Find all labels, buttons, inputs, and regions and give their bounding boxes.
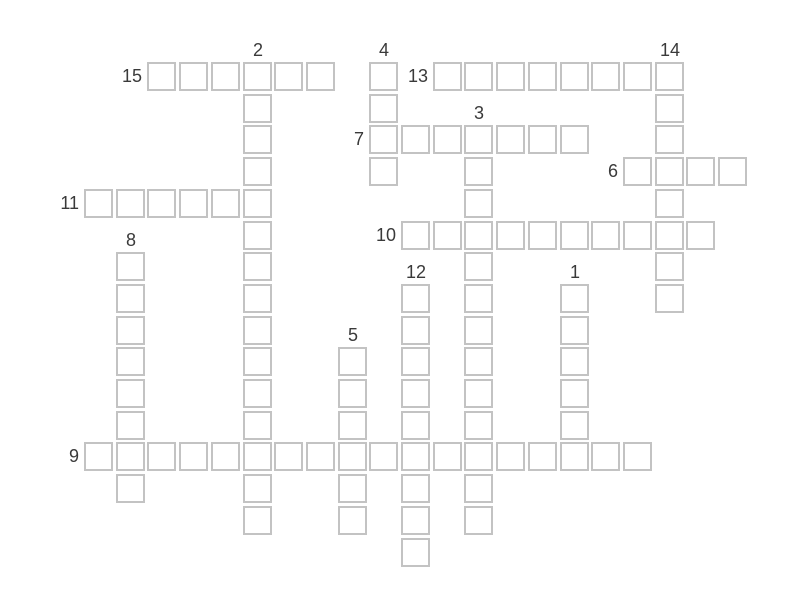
grid-cell[interactable]	[116, 411, 145, 440]
grid-cell[interactable]	[464, 347, 493, 376]
grid-cell[interactable]	[211, 62, 240, 91]
clue-number-3-down: 3	[459, 103, 499, 123]
clue-number-2-down: 2	[238, 40, 278, 60]
grid-cell[interactable]	[338, 411, 367, 440]
grid-cell[interactable]	[623, 62, 652, 91]
grid-cell[interactable]	[116, 252, 145, 281]
grid-cell[interactable]	[338, 347, 367, 376]
clue-number-1-down: 1	[555, 262, 595, 282]
grid-cell[interactable]	[464, 284, 493, 313]
grid-cell[interactable]	[591, 221, 620, 250]
grid-cell[interactable]	[433, 442, 462, 471]
clue-number-7-across: 7	[326, 125, 364, 154]
grid-cell[interactable]	[243, 442, 272, 471]
grid-cell[interactable]	[464, 474, 493, 503]
grid-cell[interactable]	[560, 284, 589, 313]
grid-cell[interactable]	[464, 189, 493, 218]
grid-cell[interactable]	[560, 62, 589, 91]
clue-number-11-across: 11	[41, 189, 79, 218]
grid-cell[interactable]	[464, 379, 493, 408]
grid-cell[interactable]	[655, 284, 684, 313]
grid-cell[interactable]	[369, 157, 398, 186]
grid-cell[interactable]	[179, 189, 208, 218]
grid-cell[interactable]	[560, 442, 589, 471]
grid-cell[interactable]	[116, 189, 145, 218]
grid-cell[interactable]	[306, 442, 335, 471]
grid-cell[interactable]	[401, 284, 430, 313]
grid-cell[interactable]	[464, 125, 493, 154]
grid-cell[interactable]	[338, 506, 367, 535]
clue-number-13-across: 13	[390, 62, 428, 91]
grid-cell[interactable]	[464, 442, 493, 471]
grid-cell[interactable]	[623, 221, 652, 250]
grid-cell[interactable]	[116, 284, 145, 313]
grid-cell[interactable]	[401, 221, 430, 250]
clue-number-15-across: 15	[104, 62, 142, 91]
grid-cell[interactable]	[464, 316, 493, 345]
grid-cell[interactable]	[655, 157, 684, 186]
clue-number-6-across: 6	[580, 157, 618, 186]
grid-cell[interactable]	[306, 62, 335, 91]
grid-cell[interactable]	[401, 316, 430, 345]
grid-cell[interactable]	[243, 411, 272, 440]
grid-cell[interactable]	[718, 157, 747, 186]
grid-cell[interactable]	[369, 125, 398, 154]
clue-number-12-down: 12	[396, 262, 436, 282]
grid-cell[interactable]	[464, 506, 493, 535]
grid-cell[interactable]	[560, 221, 589, 250]
grid-cell[interactable]	[464, 62, 493, 91]
grid-cell[interactable]	[147, 442, 176, 471]
clue-number-9-across: 9	[41, 442, 79, 471]
grid-cell[interactable]	[243, 125, 272, 154]
grid-cell[interactable]	[274, 442, 303, 471]
clue-number-5-down: 5	[333, 325, 373, 345]
grid-cell[interactable]	[560, 379, 589, 408]
grid-cell[interactable]	[655, 94, 684, 123]
grid-cell[interactable]	[243, 94, 272, 123]
grid-cell[interactable]	[464, 252, 493, 281]
grid-cell[interactable]	[496, 221, 525, 250]
grid-cell[interactable]	[655, 125, 684, 154]
grid-cell[interactable]	[116, 316, 145, 345]
grid-cell[interactable]	[433, 221, 462, 250]
grid-cell[interactable]	[623, 157, 652, 186]
grid-cell[interactable]	[686, 221, 715, 250]
grid-cell[interactable]	[496, 442, 525, 471]
grid-cell[interactable]	[369, 94, 398, 123]
grid-cell[interactable]	[211, 189, 240, 218]
grid-cell[interactable]	[401, 506, 430, 535]
grid-cell[interactable]	[243, 284, 272, 313]
grid-cell[interactable]	[84, 442, 113, 471]
grid-cell[interactable]	[147, 189, 176, 218]
grid-cell[interactable]	[401, 379, 430, 408]
grid-cell[interactable]	[243, 316, 272, 345]
grid-cell[interactable]	[401, 538, 430, 567]
grid-cell[interactable]	[464, 157, 493, 186]
grid-cell[interactable]	[369, 442, 398, 471]
grid-cell[interactable]	[528, 442, 557, 471]
grid-cell[interactable]	[655, 189, 684, 218]
grid-cell[interactable]	[211, 442, 240, 471]
grid-cell[interactable]	[591, 62, 620, 91]
grid-cell[interactable]	[655, 62, 684, 91]
crossword-grid: 123456789101112131415	[0, 0, 800, 600]
grid-cell[interactable]	[464, 221, 493, 250]
clue-number-10-across: 10	[358, 221, 396, 250]
grid-cell[interactable]	[274, 62, 303, 91]
grid-cell[interactable]	[147, 62, 176, 91]
grid-cell[interactable]	[338, 442, 367, 471]
grid-cell[interactable]	[528, 125, 557, 154]
grid-cell[interactable]	[433, 62, 462, 91]
grid-cell[interactable]	[686, 157, 715, 186]
grid-cell[interactable]	[528, 221, 557, 250]
grid-cell[interactable]	[496, 125, 525, 154]
grid-cell[interactable]	[243, 379, 272, 408]
grid-cell[interactable]	[401, 442, 430, 471]
grid-cell[interactable]	[243, 157, 272, 186]
grid-cell[interactable]	[401, 347, 430, 376]
grid-cell[interactable]	[655, 221, 684, 250]
grid-cell[interactable]	[179, 442, 208, 471]
clue-number-8-down: 8	[111, 230, 151, 250]
grid-cell[interactable]	[496, 62, 525, 91]
grid-cell[interactable]	[116, 442, 145, 471]
grid-cell[interactable]	[116, 347, 145, 376]
grid-cell[interactable]	[560, 347, 589, 376]
clue-number-4-down: 4	[364, 40, 404, 60]
grid-cell[interactable]	[243, 62, 272, 91]
grid-cell[interactable]	[243, 221, 272, 250]
grid-cell[interactable]	[623, 442, 652, 471]
grid-cell[interactable]	[338, 379, 367, 408]
grid-cell[interactable]	[401, 411, 430, 440]
grid-cell[interactable]	[116, 474, 145, 503]
grid-cell[interactable]	[338, 474, 367, 503]
grid-cell[interactable]	[243, 474, 272, 503]
grid-cell[interactable]	[401, 125, 430, 154]
grid-cell[interactable]	[243, 347, 272, 376]
grid-cell[interactable]	[591, 442, 620, 471]
grid-cell[interactable]	[243, 252, 272, 281]
grid-cell[interactable]	[401, 474, 430, 503]
grid-cell[interactable]	[243, 506, 272, 535]
grid-cell[interactable]	[179, 62, 208, 91]
grid-cell[interactable]	[528, 62, 557, 91]
grid-cell[interactable]	[243, 189, 272, 218]
grid-cell[interactable]	[433, 125, 462, 154]
grid-cell[interactable]	[84, 189, 113, 218]
clue-number-14-down: 14	[650, 40, 690, 60]
grid-cell[interactable]	[655, 252, 684, 281]
grid-cell[interactable]	[560, 125, 589, 154]
grid-cell[interactable]	[116, 379, 145, 408]
grid-cell[interactable]	[464, 411, 493, 440]
grid-cell[interactable]	[560, 316, 589, 345]
grid-cell[interactable]	[560, 411, 589, 440]
